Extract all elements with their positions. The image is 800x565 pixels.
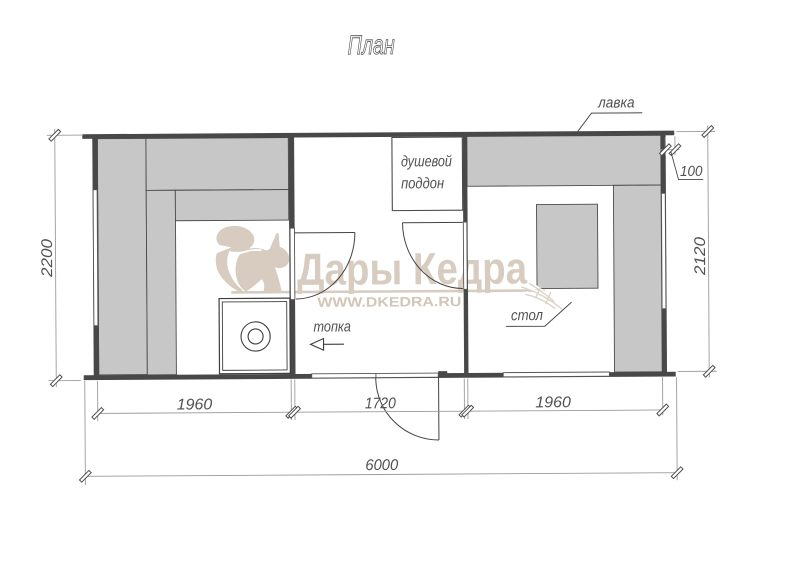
svg-text:душевой: душевой	[401, 153, 452, 170]
svg-text:1960: 1960	[177, 396, 213, 413]
svg-text:топка: топка	[313, 318, 351, 335]
svg-text:Дары Кедра: Дары Кедра	[297, 242, 528, 294]
svg-text:1720: 1720	[365, 395, 396, 412]
svg-text:стол: стол	[511, 307, 544, 324]
svg-text:WWW.DKEDRA.RU: WWW.DKEDRA.RU	[317, 294, 461, 310]
svg-text:6000: 6000	[365, 457, 398, 474]
svg-text:100: 100	[680, 164, 703, 180]
svg-text:поддон: поддон	[401, 175, 444, 192]
svg-text:2120: 2120	[692, 237, 709, 277]
svg-text:2200: 2200	[39, 239, 56, 279]
svg-text:1960: 1960	[535, 394, 571, 411]
svg-text:лавка: лавка	[597, 94, 635, 111]
svg-text:План: План	[348, 30, 395, 60]
